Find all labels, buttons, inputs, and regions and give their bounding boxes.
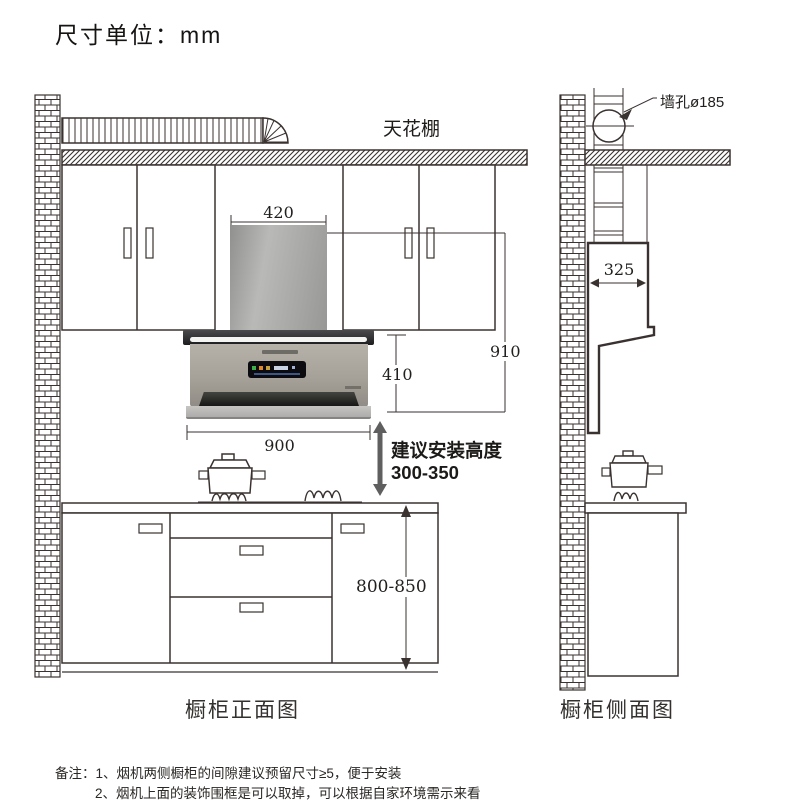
install-height-value: 300-350 — [391, 462, 459, 484]
hood-chimney — [230, 225, 327, 333]
page-title: 尺寸单位：mm — [55, 16, 222, 50]
dim-325-label: 325 — [601, 260, 637, 279]
panel-display — [274, 366, 288, 370]
hood-control-panel — [248, 361, 306, 378]
side-view-drawing — [560, 88, 730, 690]
dim-410-label: 410 — [379, 365, 416, 384]
wall-hole-label: 墙孔ø185 — [660, 91, 724, 112]
wall-hole — [586, 98, 657, 142]
front-view-caption: 橱柜正面图 — [185, 694, 300, 724]
exhaust-duct — [62, 118, 288, 143]
note-line-2: 2、烟机上面的装饰围框是可以取掉，可以根据自家环境需示来看 — [95, 782, 481, 800]
ceiling-label: 天花棚 — [383, 114, 440, 141]
side-cooktop — [602, 451, 662, 501]
upper-cabinet-right — [343, 165, 495, 330]
install-height-label: 建议安装高度 — [391, 440, 502, 462]
hood-canopy — [183, 330, 374, 345]
panel-dot-icon — [292, 366, 295, 369]
hood-brand-logo — [262, 350, 298, 354]
front-brick-wall — [35, 95, 60, 677]
side-view-caption: 橱柜侧面图 — [560, 694, 675, 724]
dim-420-label: 420 — [256, 203, 301, 222]
note-line-1: 备注：1、烟机两侧橱柜的间隙建议预留尺寸≥5，便于安装 — [55, 762, 401, 782]
side-ceiling — [585, 150, 730, 165]
hood-intake-slot — [199, 392, 359, 406]
hood-light-strip — [190, 337, 367, 342]
dim-800-850-label: 800-850 — [353, 577, 430, 597]
panel-amber-icon — [266, 366, 270, 370]
upper-cabinet-left — [62, 165, 215, 330]
hood-model-text — [345, 386, 361, 389]
front-ceiling — [62, 150, 527, 165]
dim-910-label: 910 — [487, 342, 524, 361]
panel-green-icon — [252, 366, 256, 370]
dim-900-label: 900 — [252, 436, 307, 455]
installation-diagram: 尺寸单位：mm 天花棚 420 910 410 900 800-850 建议安装… — [0, 0, 800, 800]
panel-orange-icon — [259, 366, 263, 370]
hood-bottom-plate — [186, 406, 371, 419]
install-height-arrow — [373, 421, 387, 496]
front-cooktop — [198, 454, 362, 502]
side-brick-wall — [560, 95, 585, 690]
panel-button-row — [254, 373, 300, 375]
base-cabinet-side — [585, 503, 686, 676]
